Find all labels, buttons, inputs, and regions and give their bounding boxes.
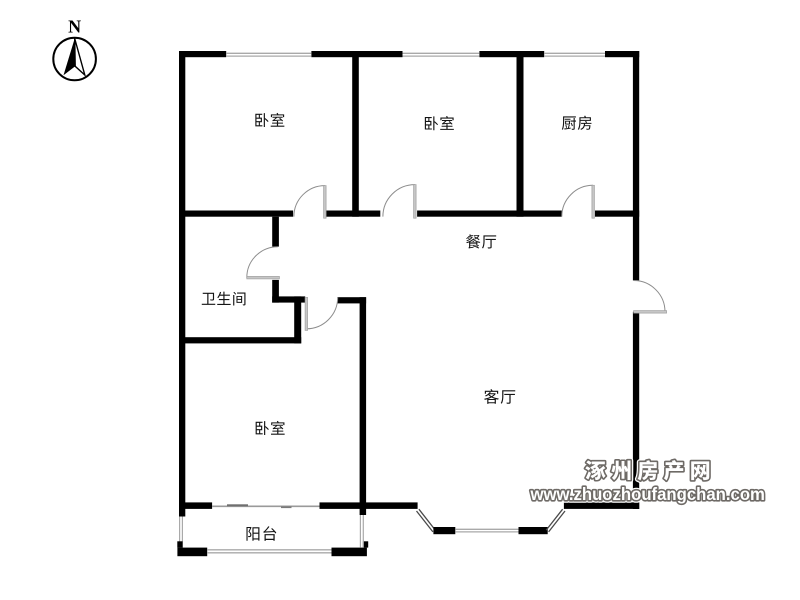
svg-text:www.zhuozhoufangchan.com: www.zhuozhoufangchan.com — [529, 484, 764, 504]
svg-text:N: N — [68, 17, 81, 37]
